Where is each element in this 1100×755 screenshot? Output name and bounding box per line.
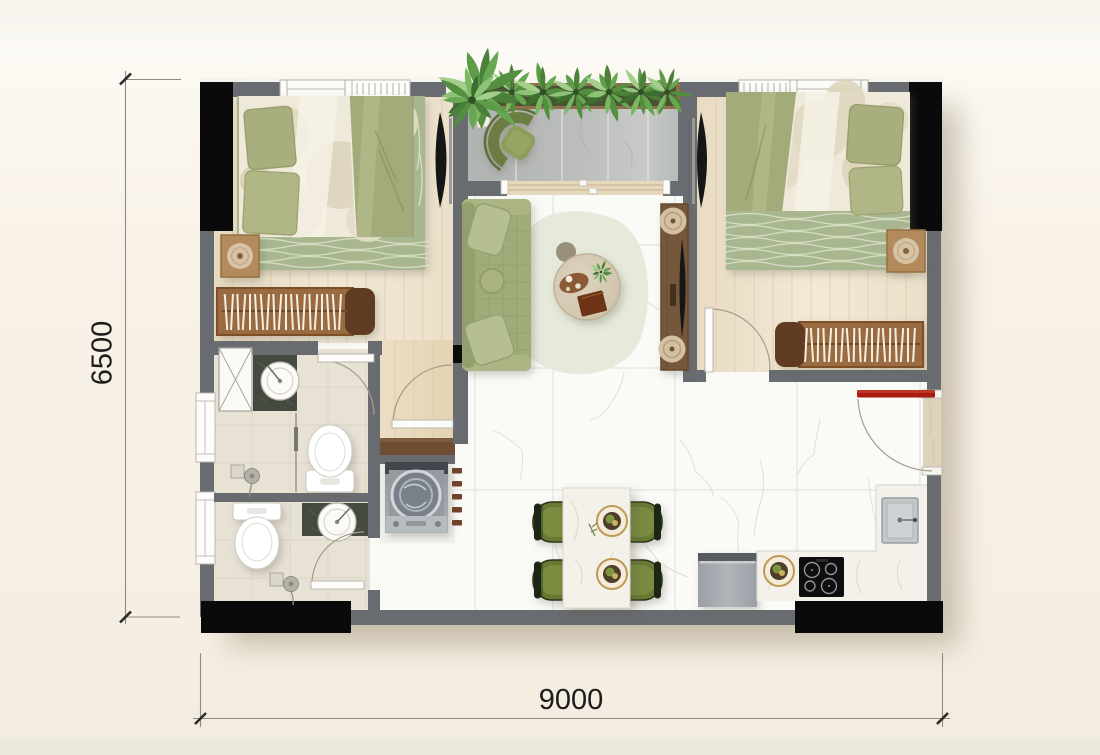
svg-text:6500: 6500 [87,321,119,386]
svg-text:9000: 9000 [539,684,604,716]
